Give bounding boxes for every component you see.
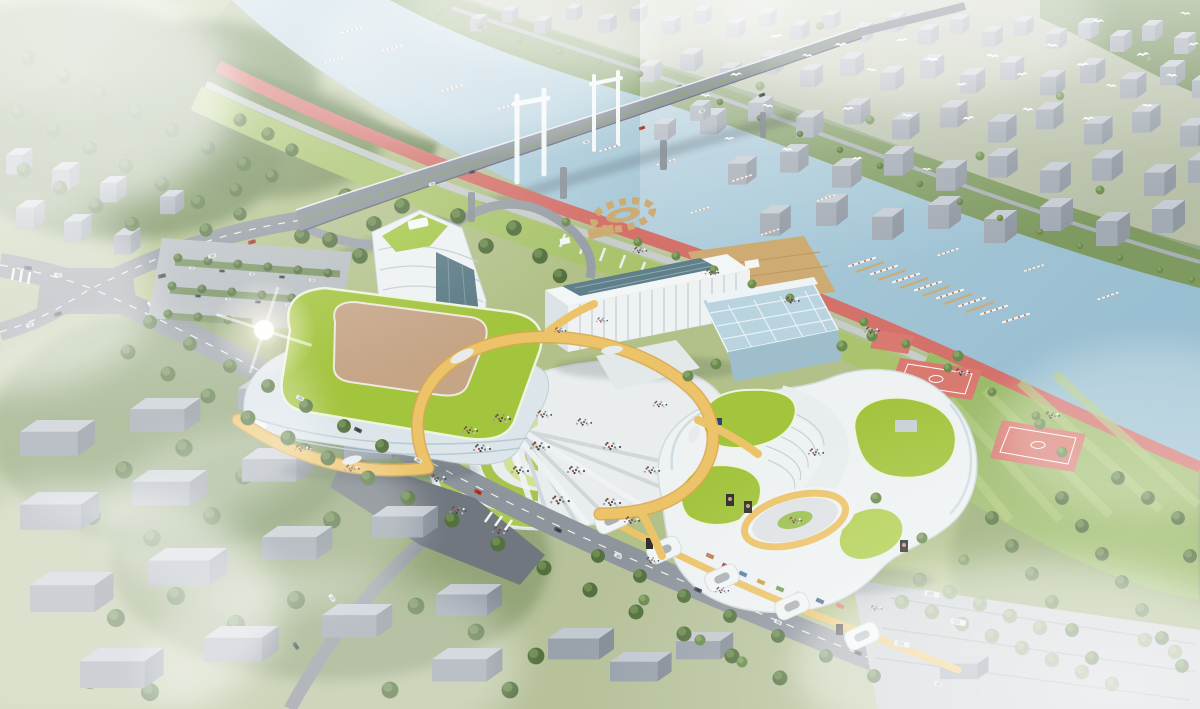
lens-flare <box>212 278 316 382</box>
atmosphere <box>0 0 1200 709</box>
scene-canvas <box>0 0 1200 709</box>
aerial-rendering <box>0 0 1200 709</box>
corner-haze-br <box>0 0 1200 709</box>
